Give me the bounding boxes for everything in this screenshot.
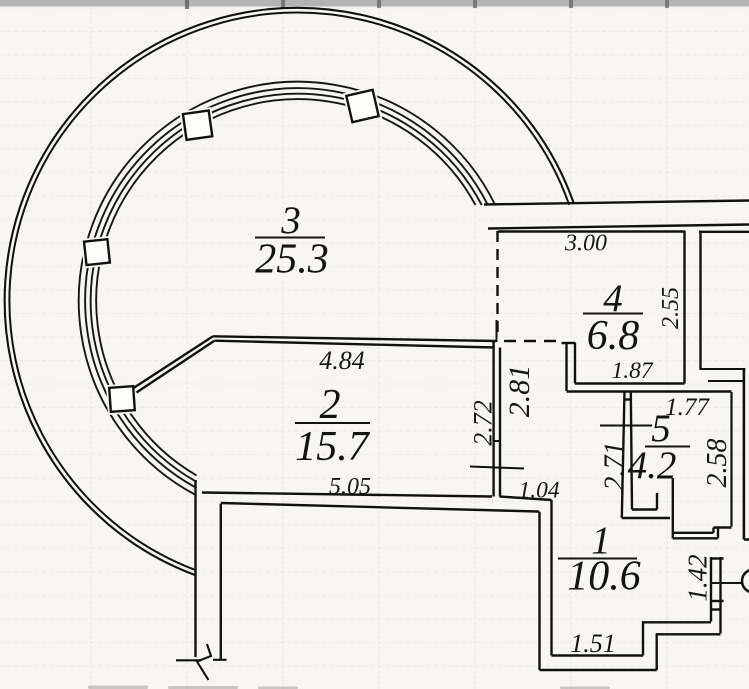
- svg-text:2: 2: [320, 382, 341, 428]
- svg-text:1.04: 1.04: [518, 478, 559, 504]
- svg-text:1.77: 1.77: [665, 394, 710, 421]
- svg-text:2.58: 2.58: [702, 439, 733, 488]
- svg-text:15.7: 15.7: [295, 424, 371, 470]
- svg-text:1.42: 1.42: [683, 554, 713, 601]
- svg-text:4.84: 4.84: [319, 346, 365, 375]
- svg-text:5.05: 5.05: [329, 474, 371, 500]
- svg-text:4.2: 4.2: [628, 444, 677, 487]
- svg-text:1.87: 1.87: [611, 358, 653, 384]
- svg-text:3.00: 3.00: [564, 231, 607, 257]
- svg-text:2.71: 2.71: [600, 442, 631, 491]
- svg-text:6.8: 6.8: [587, 313, 640, 359]
- svg-text:1.51: 1.51: [570, 629, 616, 658]
- svg-text:2.55: 2.55: [658, 287, 684, 329]
- svg-text:10.6: 10.6: [567, 554, 641, 600]
- svg-text:2.81: 2.81: [503, 365, 536, 418]
- svg-text:2.72: 2.72: [469, 400, 498, 446]
- svg-text:25.3: 25.3: [255, 237, 329, 283]
